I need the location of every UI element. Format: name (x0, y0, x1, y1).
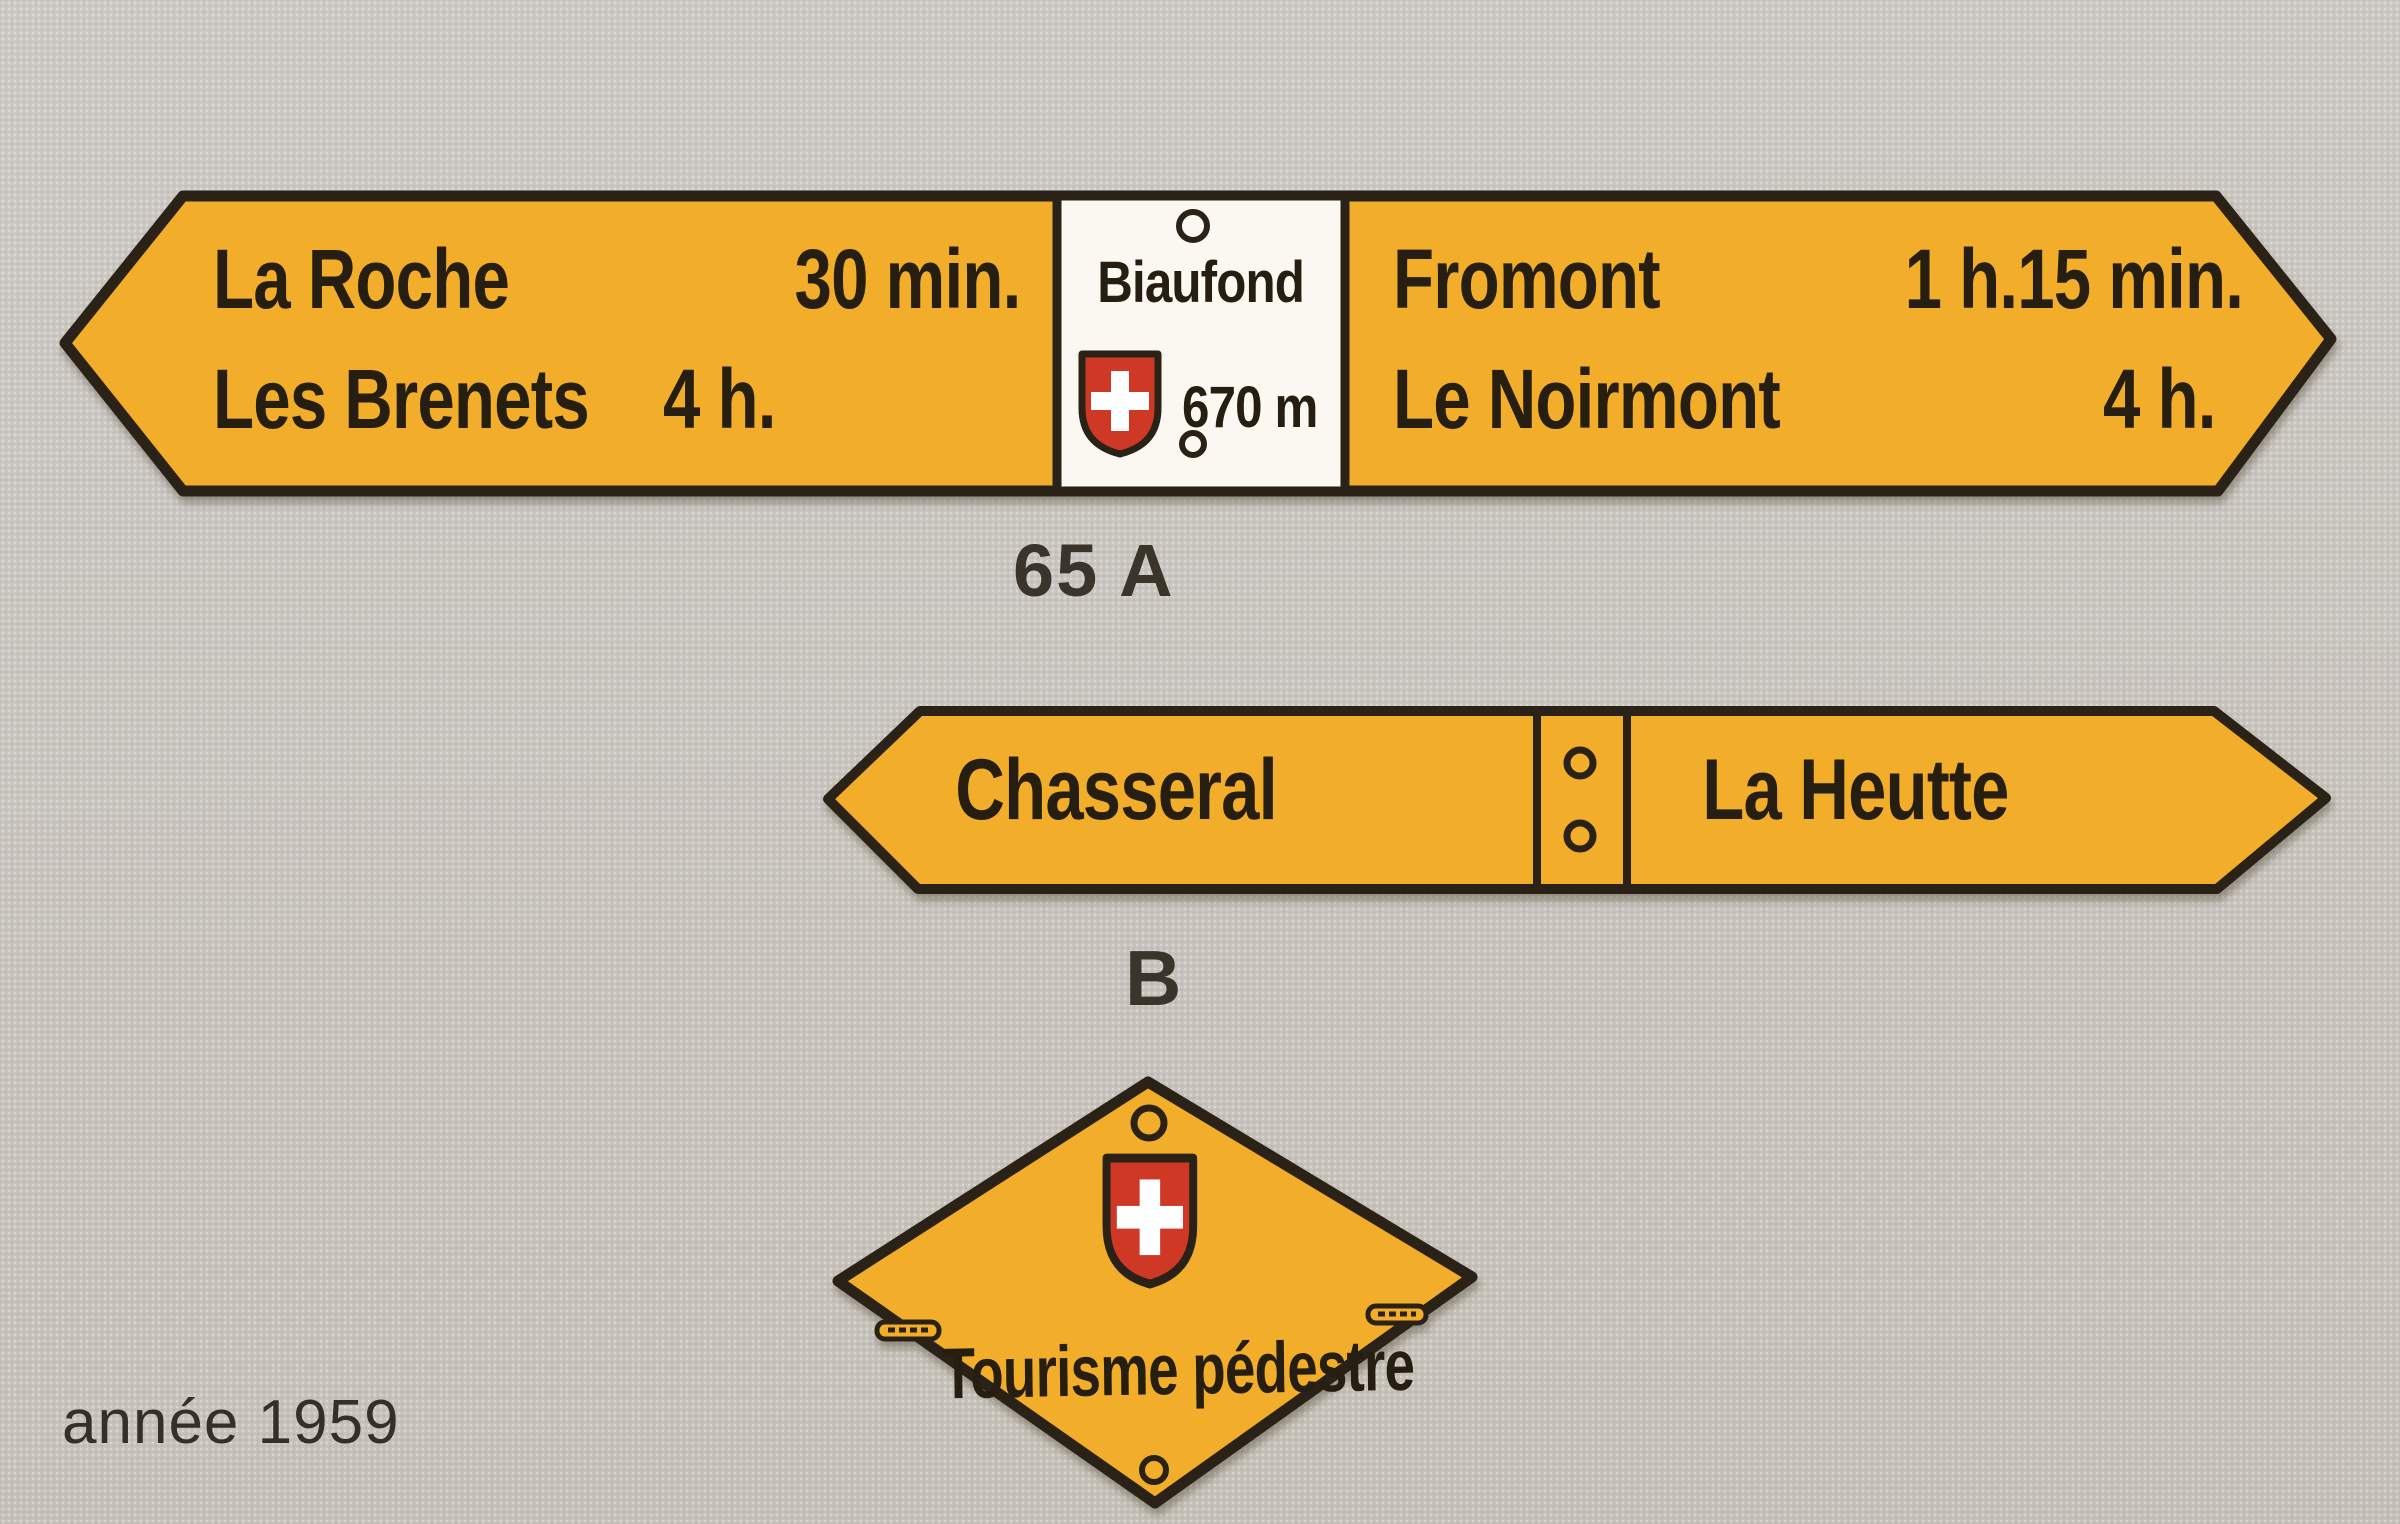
sign-a-panel-place: Biaufond (1057, 254, 1345, 312)
photo-background: La Roche 30 min. Les Brenets 4 h. Biaufo… (0, 0, 2400, 1524)
mounting-hole (1567, 823, 1593, 849)
mounting-hole (1134, 1108, 1164, 1138)
swiss-shield-icon (1082, 354, 1158, 454)
destination-label: La Roche (213, 237, 509, 321)
sign-a-figure-label: 65 A (1013, 534, 1175, 608)
sign-a-destination-la-roche: La Roche (213, 237, 583, 321)
sign-c-title: Tourisme pédestre (867, 1334, 1467, 1406)
mounting-hole (1567, 750, 1593, 776)
destination-label: Fromont (1393, 237, 1660, 321)
place-label: Biaufond (1098, 254, 1305, 312)
mounting-hole (1179, 212, 1207, 240)
sign-c-title-text: Tourisme pédestre (941, 1330, 1414, 1411)
sign-b-destination-chasseral: Chasseral (915, 747, 1315, 833)
time-label: 4 h. (2103, 357, 2216, 441)
sign-b-destination-la-heutte: La Heutte (1655, 747, 2055, 833)
sign-a-destination-le-noirmont: Le Noirmont (1393, 357, 1877, 441)
destination-label: Chasseral (955, 747, 1277, 833)
time-label: 1 h.15 min. (1905, 237, 2244, 321)
elevation-label: 670 m (1182, 379, 1318, 437)
sign-a-panel-elevation: 670 m (1182, 379, 1341, 437)
mounting-hole (1142, 1458, 1166, 1482)
time-label: 30 min. (794, 237, 1020, 321)
destination-label: Les Brenets (213, 357, 589, 441)
sign-a-destination-les-brenets: Les Brenets (213, 357, 683, 441)
figure-label-text: B (1125, 934, 1183, 1022)
sign-a-time-les-brenets: 4 h. (663, 357, 804, 441)
time-label: 4 h. (663, 357, 776, 441)
mounting-slot (1368, 1306, 1426, 1323)
swiss-shield-icon (1107, 1158, 1194, 1284)
destination-label: La Heutte (1702, 747, 2008, 833)
sign-a-time-fromont: 1 h.15 min. (1820, 237, 2213, 321)
sign-b-figure-label: B (1125, 939, 1183, 1017)
figure-label-text: 65 A (1013, 529, 1175, 612)
sign-c-diamond-body (838, 1082, 1472, 1503)
caption-text: année 1959 (62, 1388, 400, 1457)
destination-label: Le Noirmont (1393, 357, 1780, 441)
sign-a-destination-fromont: Fromont (1393, 237, 1727, 321)
sign-a-time-la-roche: 30 min. (700, 237, 1020, 321)
sign-c-shape (838, 1082, 1472, 1503)
photo-caption-year: année 1959 (62, 1392, 400, 1454)
sign-a-time-le-noirmont: 4 h. (2103, 357, 2244, 441)
